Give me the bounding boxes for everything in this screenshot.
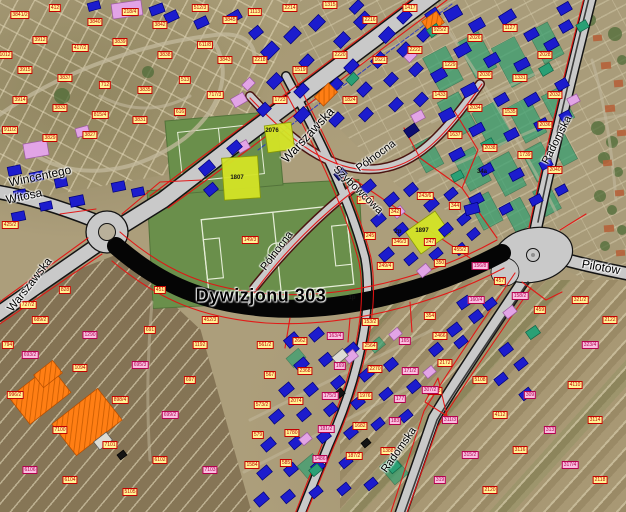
map-path bbox=[348, 318, 350, 342]
building-v bbox=[242, 77, 255, 90]
tree-cluster bbox=[617, 225, 626, 235]
highlighted-parcel bbox=[222, 156, 261, 200]
building-b bbox=[429, 247, 443, 261]
map-path bbox=[560, 214, 586, 230]
roundabout-right-dot bbox=[531, 253, 535, 257]
building-r bbox=[603, 160, 612, 167]
building-b bbox=[283, 332, 300, 349]
building-b bbox=[467, 227, 481, 240]
building-b bbox=[414, 92, 429, 107]
building-b bbox=[164, 10, 180, 24]
building-b bbox=[260, 41, 279, 60]
building-v bbox=[23, 140, 49, 159]
building-b bbox=[279, 382, 295, 397]
building-b bbox=[454, 242, 468, 255]
building-b bbox=[304, 382, 319, 397]
building-b bbox=[309, 15, 326, 32]
building-b bbox=[337, 482, 351, 496]
tree-cluster bbox=[607, 205, 617, 215]
building-v bbox=[230, 92, 247, 108]
roundabout-left-island bbox=[99, 224, 116, 241]
building-b bbox=[429, 342, 444, 357]
building-b bbox=[309, 327, 325, 342]
building-r bbox=[615, 190, 624, 197]
building-b bbox=[131, 187, 144, 197]
building-b bbox=[371, 417, 385, 431]
building-b bbox=[371, 212, 387, 227]
building-b bbox=[227, 9, 243, 23]
building-b bbox=[267, 73, 284, 90]
building-b bbox=[498, 9, 516, 25]
tree-cluster bbox=[591, 121, 605, 135]
building-b bbox=[409, 62, 424, 77]
building-b bbox=[494, 372, 508, 386]
building-k bbox=[117, 450, 127, 460]
building-b bbox=[389, 97, 404, 112]
tree-cluster bbox=[600, 241, 610, 251]
building-b bbox=[359, 107, 374, 122]
map-path bbox=[405, 288, 531, 512]
tree-cluster bbox=[608, 27, 622, 41]
building-v bbox=[75, 125, 90, 137]
building-b bbox=[149, 3, 165, 16]
building-b bbox=[559, 20, 574, 34]
building-b bbox=[443, 5, 462, 23]
map-viewport[interactable]: 3841/24123840218/43842512/338453912417/2… bbox=[0, 0, 626, 512]
tree-cluster bbox=[142, 66, 154, 78]
building-b bbox=[514, 357, 528, 371]
building-k bbox=[361, 438, 371, 448]
building-b bbox=[281, 489, 296, 504]
building-b bbox=[359, 367, 375, 382]
building-b bbox=[194, 16, 210, 30]
building-b bbox=[357, 82, 373, 98]
building-b bbox=[329, 112, 345, 128]
building-b bbox=[519, 387, 533, 401]
building-b bbox=[364, 477, 378, 491]
map-path bbox=[596, 114, 626, 120]
building-b bbox=[334, 32, 351, 49]
building-b bbox=[284, 26, 302, 44]
map-path bbox=[410, 302, 412, 332]
building-b bbox=[297, 407, 312, 422]
building-b bbox=[379, 387, 393, 401]
building-b bbox=[384, 357, 399, 372]
building-v bbox=[423, 365, 437, 378]
building-r bbox=[605, 105, 616, 113]
building-r bbox=[616, 250, 625, 257]
building-b bbox=[261, 437, 277, 452]
building-v bbox=[111, 0, 143, 19]
building-r bbox=[617, 130, 626, 137]
building-b bbox=[11, 211, 26, 223]
building-b bbox=[404, 182, 419, 197]
building-b bbox=[249, 25, 264, 40]
building-r bbox=[601, 62, 612, 70]
tree-cluster bbox=[617, 55, 626, 65]
building-b bbox=[379, 247, 395, 262]
building-b bbox=[454, 335, 468, 349]
building-b bbox=[424, 197, 440, 212]
map-path bbox=[168, 0, 447, 208]
building-b bbox=[54, 177, 68, 188]
tree-cluster bbox=[54, 88, 70, 104]
map-vector-layer bbox=[0, 0, 626, 512]
building-b bbox=[394, 222, 409, 237]
building-b bbox=[557, 1, 573, 15]
building-b bbox=[469, 309, 484, 323]
building-b bbox=[399, 409, 413, 423]
building-b bbox=[254, 492, 270, 507]
building-b bbox=[444, 187, 458, 201]
building-b bbox=[69, 195, 85, 208]
building-b bbox=[111, 181, 126, 193]
building-b bbox=[457, 295, 473, 310]
building-b bbox=[319, 352, 334, 367]
building-b bbox=[384, 72, 399, 87]
building-r bbox=[593, 35, 602, 42]
building-b bbox=[499, 342, 514, 356]
building-b bbox=[447, 322, 463, 337]
map-path bbox=[100, 96, 190, 108]
building-b bbox=[384, 192, 400, 207]
vegetation-parcel bbox=[368, 337, 385, 354]
building-b bbox=[29, 171, 44, 183]
building-b bbox=[349, 0, 364, 14]
building-b bbox=[257, 465, 273, 480]
building-v bbox=[389, 327, 403, 340]
building-b bbox=[87, 1, 101, 12]
building-r bbox=[614, 80, 624, 88]
building-b bbox=[339, 455, 353, 469]
building-v bbox=[411, 110, 426, 124]
building-b bbox=[404, 252, 418, 266]
building-b bbox=[284, 462, 299, 477]
building-g bbox=[526, 325, 541, 339]
building-b bbox=[7, 165, 22, 177]
highlighted-parcel bbox=[264, 122, 294, 152]
building-b bbox=[331, 375, 346, 390]
building-b bbox=[555, 184, 568, 196]
building-b bbox=[468, 17, 485, 33]
tree-cluster bbox=[594, 190, 606, 202]
building-b bbox=[353, 11, 372, 30]
building-b bbox=[361, 179, 377, 194]
building-n bbox=[404, 123, 420, 138]
map-path bbox=[0, 246, 96, 318]
building-b bbox=[344, 425, 359, 440]
map-path bbox=[148, 302, 152, 460]
building-b bbox=[483, 297, 497, 311]
building-b bbox=[299, 54, 315, 70]
building-r bbox=[604, 225, 615, 233]
building-v bbox=[392, 205, 406, 218]
